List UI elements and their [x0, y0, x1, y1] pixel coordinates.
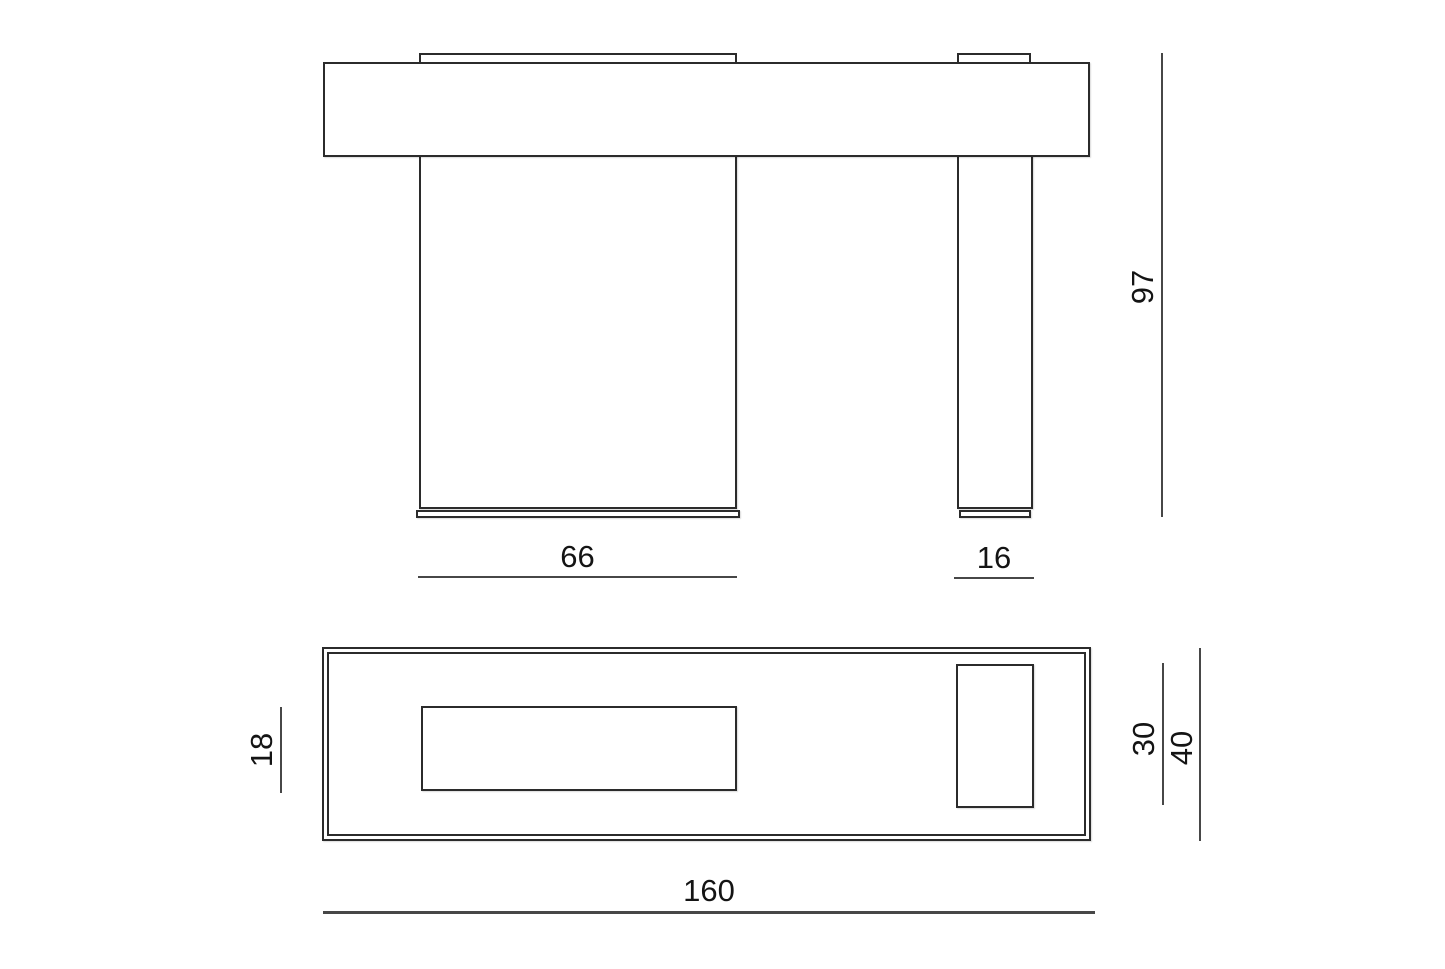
dim-line-total-width	[323, 911, 1095, 914]
plan-left-leg-section	[421, 706, 737, 791]
right-leg	[957, 155, 1033, 509]
plan-right-leg-section	[956, 664, 1034, 808]
dim-line-right-leg-width	[954, 577, 1034, 579]
right-leg-base	[959, 510, 1031, 518]
dim-label-left-leg-depth: 18	[242, 720, 282, 780]
dim-label-total-height: 97	[1123, 257, 1163, 317]
dim-label-right-leg-depth: 30	[1124, 709, 1164, 769]
dim-label-right-leg-width: 16	[954, 541, 1034, 575]
left-leg	[419, 155, 737, 509]
dim-label-total-depth: 40	[1162, 718, 1202, 778]
dim-label-total-width: 160	[323, 874, 1095, 908]
technical-drawing-canvas: 66 16 97 18 30 40 160	[0, 0, 1445, 969]
dim-line-left-leg-width	[418, 576, 737, 578]
left-leg-base	[416, 510, 740, 518]
dim-label-left-leg-width: 66	[418, 540, 737, 574]
top-slab	[323, 62, 1090, 157]
